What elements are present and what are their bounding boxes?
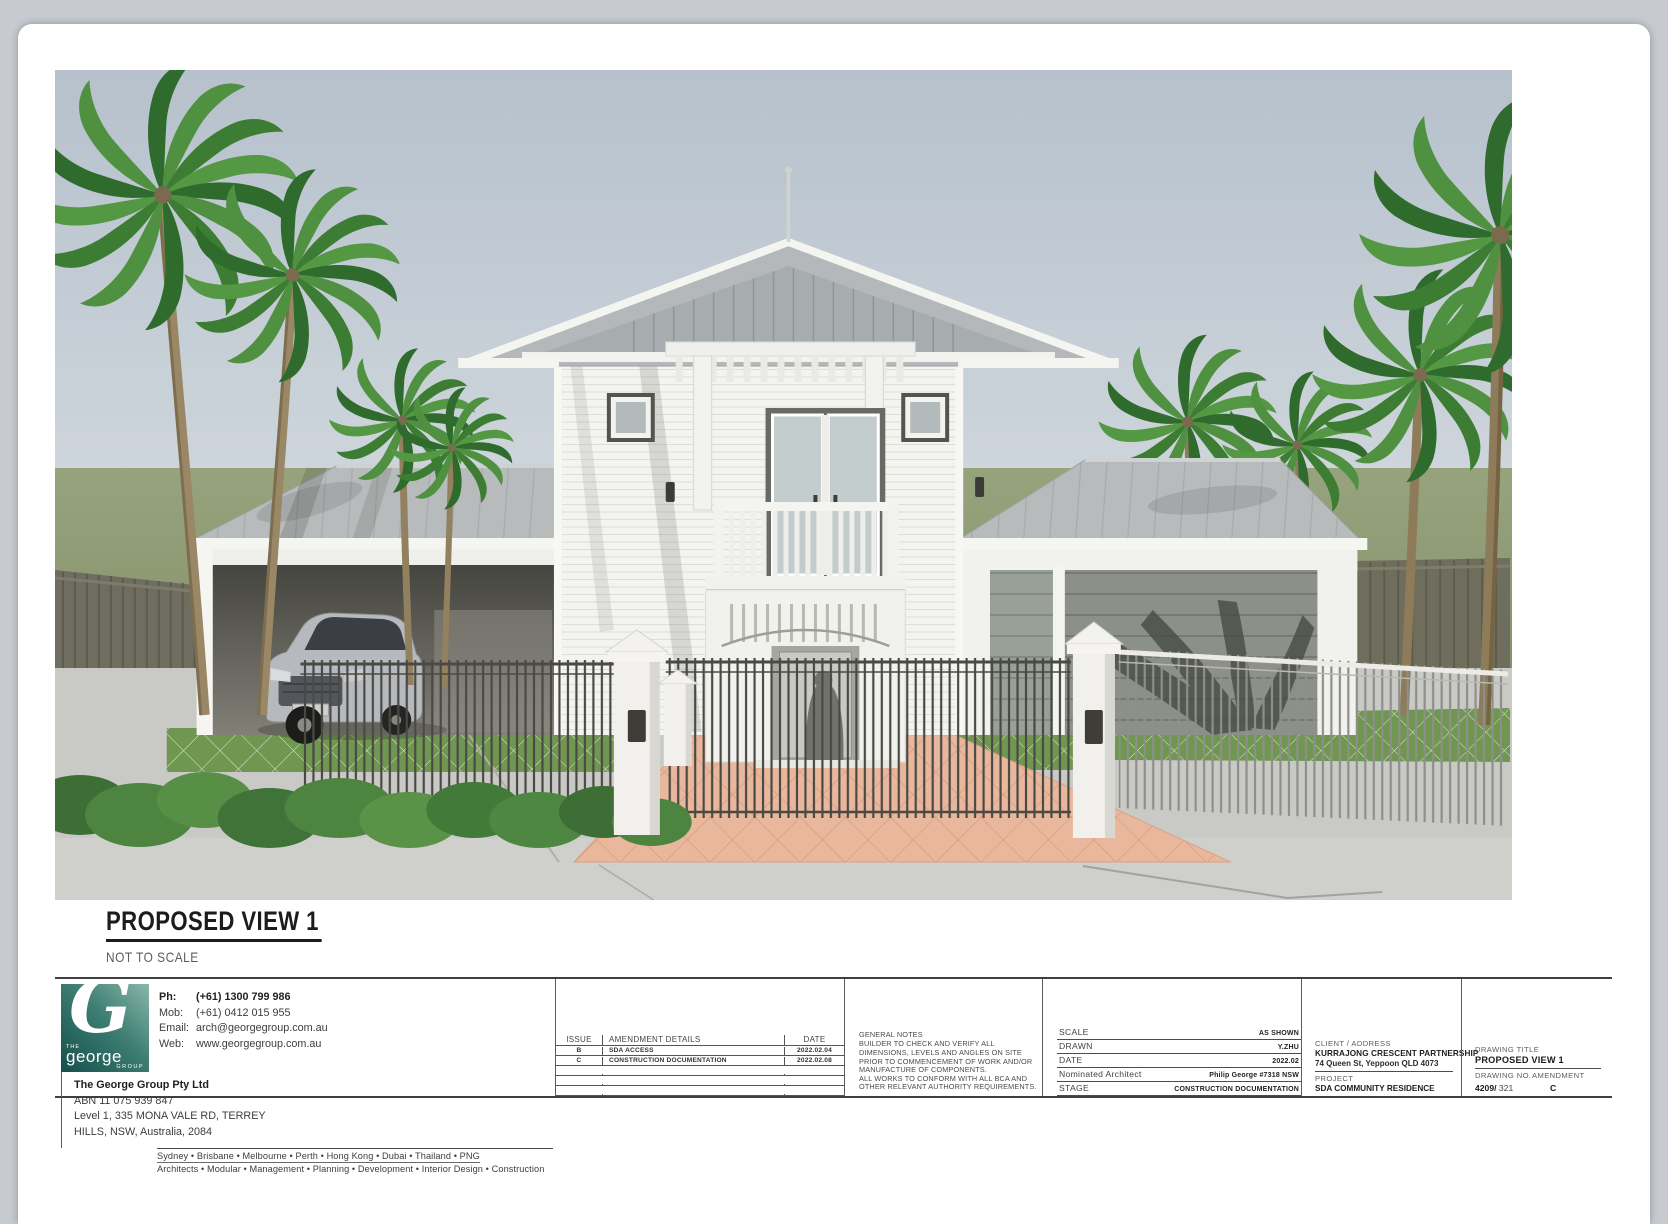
drawing-number-block: DRAWING NO. AMENDMENT 4209/ 321 C bbox=[1475, 1071, 1606, 1093]
web-row: Web:www.georgegroup.com.au bbox=[159, 1037, 351, 1053]
general-notes: GENERAL NOTES BUILDER TO CHECK AND VERIF… bbox=[844, 979, 1042, 1096]
drawing-title: PROPOSED VIEW 1 bbox=[1475, 1055, 1606, 1065]
architectural-drawing-page: { "view": { "heading": "PROPOSED VIEW 1"… bbox=[0, 0, 1668, 1168]
amendment-row: B SDA ACCESS 2022.02.04 bbox=[556, 1046, 844, 1056]
view-label: PROPOSED VIEW 1 NOT TO SCALE bbox=[106, 906, 369, 965]
drawn-row: DRAWNY.ZHU bbox=[1057, 1040, 1301, 1054]
logo-wordmark: THE george GROUP bbox=[61, 1045, 149, 1070]
email-address: arch@georgegroup.com.au bbox=[196, 1022, 328, 1034]
company-abn: ABN 11 075 939 847 bbox=[74, 1094, 272, 1110]
amendment-table: ISSUE AMENDMENT DETAILS DATE B SDA ACCES… bbox=[555, 979, 844, 1096]
stage-value: CONSTRUCTION DOCUMENTATION bbox=[1174, 1086, 1299, 1093]
contact-details: Ph:(+61) 1300 799 986 Mob:(+61) 0412 015… bbox=[149, 984, 351, 1072]
amendment-value: C bbox=[1532, 1083, 1606, 1093]
amendment-row-empty bbox=[556, 1086, 844, 1096]
post-lamp bbox=[628, 710, 646, 742]
fence-post-right bbox=[1065, 622, 1123, 838]
scale-note: NOT TO SCALE bbox=[106, 949, 329, 965]
drawing-number: 4209/ 321 bbox=[1475, 1083, 1532, 1093]
post-lamp bbox=[1085, 710, 1103, 744]
fence-post-small bbox=[658, 670, 698, 766]
drawn-value: Y.ZHU bbox=[1278, 1044, 1299, 1051]
company-footer: Sydney • Brisbane • Melbourne • Perth • … bbox=[157, 1148, 553, 1174]
date-row: DATE2022.02 bbox=[1057, 1054, 1301, 1068]
scale-value: AS SHOWN bbox=[1259, 1030, 1299, 1037]
stage-row: STAGECONSTRUCTION DOCUMENTATION bbox=[1057, 1082, 1301, 1096]
fence-post-left bbox=[606, 630, 668, 835]
amendment-row-empty bbox=[556, 1066, 844, 1076]
client-address: 74 Queen St, Yeppoon QLD 4073 bbox=[1315, 1059, 1459, 1068]
company-details: The George Group Pty Ltd ABN 11 075 939 … bbox=[61, 1072, 272, 1148]
project-label: PROJECT bbox=[1315, 1074, 1459, 1083]
website-url: www.georgegroup.com.au bbox=[196, 1038, 321, 1050]
company-name: The George Group Pty Ltd bbox=[74, 1078, 272, 1094]
amendment-row: C CONSTRUCTION DOCUMENTATION 2022.02.08 bbox=[556, 1056, 844, 1066]
george-group-logo-icon: G THE george GROUP bbox=[61, 984, 149, 1072]
logo-g-glyph: G bbox=[69, 984, 132, 1044]
drawing-number-label: DRAWING NO. bbox=[1475, 1071, 1532, 1080]
page-title: PROPOSED VIEW 1 bbox=[106, 906, 321, 942]
company-address-1: Level 1, 335 MONA VALE RD, TERREY bbox=[74, 1109, 272, 1125]
title-block: G THE george GROUP Ph:(+61) 1300 799 986… bbox=[55, 977, 1612, 1098]
company-address-2: HILLS, NSW, Australia, 2084 bbox=[74, 1125, 272, 1141]
drawing-title-label: DRAWING TITLE bbox=[1475, 1045, 1606, 1054]
amendment-row-empty bbox=[556, 1076, 844, 1086]
project-name: SDA COMMUNITY RESIDENCE bbox=[1315, 1084, 1459, 1093]
company-section: G THE george GROUP Ph:(+61) 1300 799 986… bbox=[55, 979, 555, 1096]
architect-value: Philip George #7318 NSW bbox=[1209, 1072, 1299, 1079]
divider-rule bbox=[1475, 1068, 1601, 1069]
upper-window-right bbox=[901, 393, 949, 442]
drawing-info-table: SCALEAS SHOWN DRAWNY.ZHU DATE2022.02 Nom… bbox=[1042, 979, 1301, 1096]
phone-row: Ph:(+61) 1300 799 986 bbox=[159, 990, 351, 1006]
email-row: Email:arch@georgegroup.com.au bbox=[159, 1021, 351, 1037]
wall-lamp bbox=[975, 477, 984, 497]
wall-lamp bbox=[666, 482, 675, 502]
drawing-sheet: PROPOSED VIEW 1 NOT TO SCALE G THE georg… bbox=[18, 24, 1650, 1224]
amendment-label: AMENDMENT bbox=[1532, 1071, 1606, 1080]
general-notes-title: GENERAL NOTES bbox=[859, 1031, 1038, 1040]
divider-rule bbox=[1315, 1071, 1453, 1072]
client-section: CLIENT / ADDRESS KURRAJONG CRESCENT PART… bbox=[1301, 979, 1461, 1096]
architect-row: Nominated ArchitectPhilip George #7318 N… bbox=[1057, 1068, 1301, 1082]
general-notes-line: OTHER RELEVANT AUTHORITY REQUIREMENTS. bbox=[859, 1083, 1038, 1092]
amendment-header-row: ISSUE AMENDMENT DETAILS DATE bbox=[556, 1035, 844, 1046]
mobile-row: Mob:(+61) 0412 015 955 bbox=[159, 1006, 351, 1022]
date-value: 2022.02 bbox=[1272, 1058, 1299, 1065]
upper-window-left bbox=[607, 393, 655, 442]
client-label: CLIENT / ADDRESS bbox=[1315, 1039, 1459, 1048]
mobile-number: (+61) 0412 015 955 bbox=[196, 1007, 291, 1019]
scale-row: SCALEAS SHOWN bbox=[1057, 1026, 1301, 1040]
proposed-view-rendering bbox=[55, 70, 1512, 900]
company-services: Architects • Modular • Management • Plan… bbox=[157, 1164, 553, 1174]
phone-number: (+61) 1300 799 986 bbox=[196, 991, 291, 1003]
drawing-title-section: DRAWING TITLE PROPOSED VIEW 1 DRAWING NO… bbox=[1461, 979, 1612, 1096]
client-name: KURRAJONG CRESCENT PARTNERSHIP bbox=[1315, 1049, 1459, 1058]
office-locations: Sydney • Brisbane • Melbourne • Perth • … bbox=[157, 1151, 480, 1163]
